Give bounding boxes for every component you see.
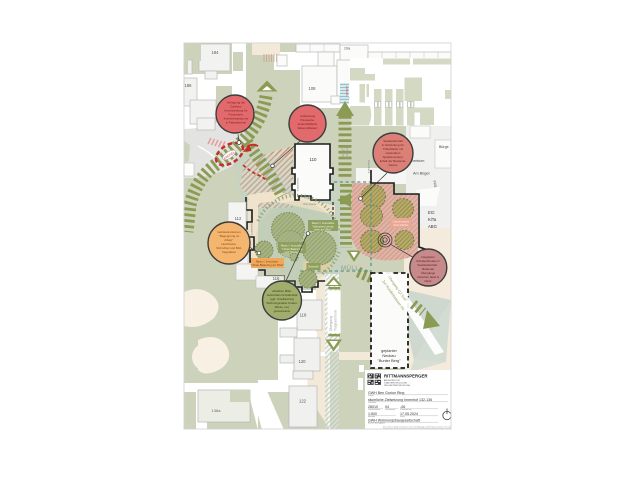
- svg-text:Raumkante: Raumkante: [367, 160, 371, 174]
- svg-text:110: 110: [310, 157, 318, 162]
- svg-text:oben am Wipf.": oben am Wipf.": [314, 228, 332, 232]
- svg-text:KiTa: KiTa: [428, 217, 437, 222]
- svg-text:Bürge: Bürge: [439, 145, 449, 149]
- svg-text:SinnesW.: SinnesW.: [308, 265, 319, 269]
- svg-text:STADTENTWICKLUNG: STADTENTWICKLUNG: [384, 382, 407, 385]
- svg-text:Vegetation: Vegetation: [222, 250, 237, 254]
- svg-text:Übergang: Übergang: [329, 316, 333, 331]
- svg-text:und Theater": und Theater": [284, 250, 299, 254]
- svg-text:Raumkante: Raumkante: [250, 222, 254, 236]
- svg-text:Tragezentrum: Tragezentrum: [334, 310, 338, 331]
- svg-text:Zentrum: Zentrum: [411, 159, 424, 163]
- svg-text:ARCHITEKTUR: ARCHITEKTUR: [384, 379, 400, 382]
- svg-text:186: 186: [185, 83, 193, 88]
- svg-text:Planänderung: Planänderung: [400, 409, 411, 411]
- svg-text:QZ Ost: QZ Ost: [341, 147, 345, 157]
- svg-text:gemeinsame: gemeinsame: [274, 309, 291, 313]
- svg-text:PROJEKTENTWICKLUNG: PROJEKTENTWICKLUNG: [384, 385, 411, 387]
- svg-text:Raum f. Innovation: Raum f. Innovation: [281, 244, 304, 248]
- svg-text:120: 120: [299, 359, 307, 364]
- svg-text:118: 118: [300, 313, 307, 318]
- svg-text:"Bunter Berg": "Bunter Berg": [378, 359, 402, 363]
- svg-text:Plannummer: Plannummer: [385, 409, 396, 411]
- svg-text:10a: 10a: [344, 47, 351, 51]
- svg-text:184: 184: [212, 50, 220, 55]
- svg-text:Raumkante: Raumkante: [296, 178, 300, 192]
- svg-text:108: 108: [309, 86, 317, 91]
- svg-text:bäume: bäume: [389, 163, 398, 167]
- svg-text:Raum f. Innovation: Raum f. Innovation: [256, 260, 279, 264]
- svg-text:122: 122: [299, 399, 307, 404]
- svg-text:EG:: EG:: [428, 210, 435, 215]
- svg-text:112: 112: [235, 216, 242, 221]
- svg-text:Luftschn.: Luftschn.: [345, 86, 349, 97]
- svg-text:Am Bügel: Am Bügel: [413, 172, 430, 176]
- svg-text:136a: 136a: [212, 408, 222, 413]
- svg-text:Neubau: Neubau: [382, 354, 395, 358]
- svg-text:räumliche Zielsetzung Innenhof: räumliche Zielsetzung Innenhof 132-136: [368, 398, 432, 402]
- svg-text:"Urban-Balancing am Pfad": "Urban-Balancing am Pfad": [251, 263, 284, 267]
- svg-text:KiTa-Fläche: KiTa-Fläche: [394, 223, 409, 227]
- svg-text:RITTMANNSPERGER: RITTMANNSPERGER: [384, 374, 428, 379]
- svg-text:geplanter: geplanter: [381, 349, 398, 353]
- svg-text:MÜLL: MÜLL: [341, 265, 359, 272]
- svg-text:& Paketdienste: & Paketdienste: [226, 121, 247, 125]
- svg-text:Wasenpflaster(: Wasenpflaster(: [297, 126, 317, 130]
- svg-text:ABG: ABG: [428, 224, 437, 229]
- svg-text:Natur: Natur: [424, 279, 431, 283]
- svg-text:Raum f. Innovation: Raum f. Innovation: [312, 221, 335, 225]
